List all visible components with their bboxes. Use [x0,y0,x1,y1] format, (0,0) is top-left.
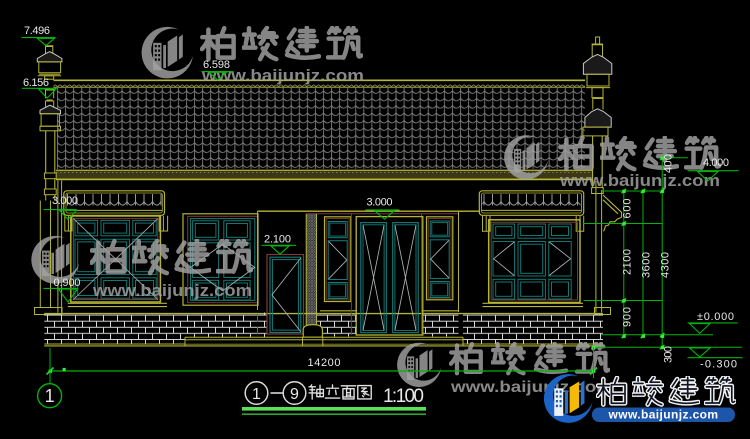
svg-text:±0.000: ±0.000 [697,311,734,323]
svg-text:1:100: 1:100 [383,386,424,407]
svg-text:7.496: 7.496 [24,25,50,37]
svg-text:6.598: 6.598 [203,59,230,71]
svg-text:4.000: 4.000 [703,157,729,169]
svg-text:www.baijunjz.com: www.baijunjz.com [559,172,720,190]
svg-text:3.000: 3.000 [52,195,78,207]
svg-text:3.000: 3.000 [367,197,393,209]
svg-text:1: 1 [252,386,261,403]
svg-text:6.156: 6.156 [23,77,49,89]
svg-text:www.baijunjz.com: www.baijunjz.com [450,379,613,396]
svg-text:0.900: 0.900 [54,277,81,289]
svg-text:900: 900 [622,307,634,327]
svg-text:9: 9 [290,386,299,403]
svg-text:4300: 4300 [660,252,672,278]
svg-text:www.baijunjz.com: www.baijunjz.com [608,408,719,422]
svg-text:300: 300 [663,346,675,363]
svg-text:3600: 3600 [641,252,653,278]
svg-text:-0.300: -0.300 [700,359,737,371]
svg-text:600: 600 [622,199,634,219]
svg-text:14200: 14200 [308,357,341,369]
svg-text:2.100: 2.100 [264,234,291,246]
svg-text:400: 400 [663,154,675,173]
svg-text:1: 1 [45,386,55,406]
svg-text:2100: 2100 [622,249,634,275]
svg-text:www.baijunjz.com: www.baijunjz.com [92,282,252,300]
